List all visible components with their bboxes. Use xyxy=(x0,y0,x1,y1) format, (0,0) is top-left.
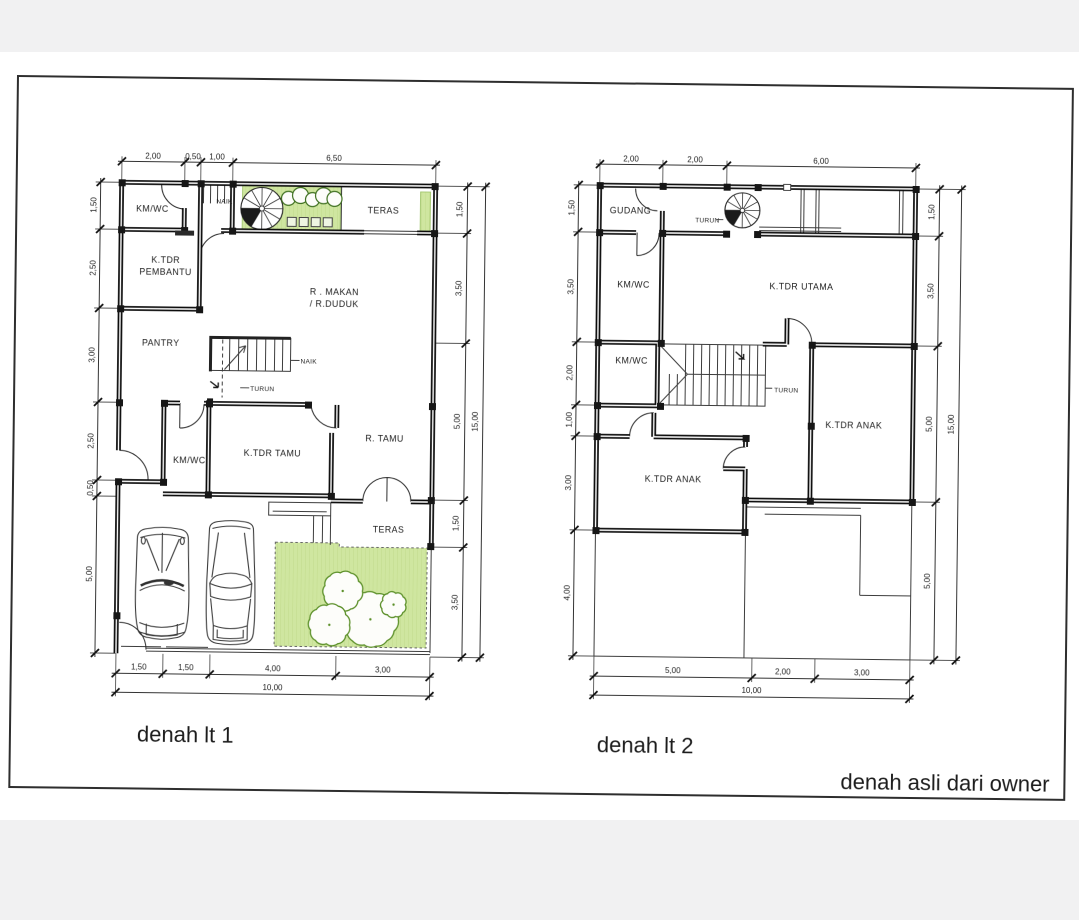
svg-text:1,50: 1,50 xyxy=(178,663,194,672)
svg-text:1,00: 1,00 xyxy=(209,152,225,161)
svg-text:0,50: 0,50 xyxy=(185,152,201,161)
svg-text:TURUN: TURUN xyxy=(695,217,719,224)
svg-text:3,50: 3,50 xyxy=(566,278,575,294)
svg-text:denah lt 2: denah lt 2 xyxy=(597,732,694,758)
svg-text:KM/WC: KM/WC xyxy=(617,279,650,289)
svg-text:6,00: 6,00 xyxy=(813,157,829,166)
svg-text:3,00: 3,00 xyxy=(87,347,96,363)
svg-text:1,50: 1,50 xyxy=(451,515,460,531)
svg-text:GUDANG: GUDANG xyxy=(610,205,651,216)
svg-text:PEMBANTU: PEMBANTU xyxy=(139,267,192,278)
svg-text:6,50: 6,50 xyxy=(326,154,342,163)
svg-text:1,50: 1,50 xyxy=(89,197,98,213)
svg-text:15,00: 15,00 xyxy=(947,414,956,435)
svg-text:3,00: 3,00 xyxy=(564,474,573,490)
svg-text:K.TDR: K.TDR xyxy=(151,255,180,265)
svg-text:5,00: 5,00 xyxy=(925,416,934,432)
svg-text:TERAS: TERAS xyxy=(373,524,405,534)
svg-text:10,00: 10,00 xyxy=(262,683,283,692)
svg-text:5,00: 5,00 xyxy=(453,413,462,429)
svg-text:K.TDR UTAMA: K.TDR UTAMA xyxy=(769,281,833,292)
svg-text:PANTRY: PANTRY xyxy=(142,338,180,348)
svg-text:1,00: 1,00 xyxy=(565,411,574,427)
svg-text:4,00: 4,00 xyxy=(265,664,281,673)
svg-text:3,50: 3,50 xyxy=(926,283,935,299)
svg-text:K.TDR TAMU: K.TDR TAMU xyxy=(244,448,302,459)
svg-text:3,50: 3,50 xyxy=(454,280,463,296)
svg-text:1,50: 1,50 xyxy=(927,204,936,220)
svg-text:2,00: 2,00 xyxy=(623,154,639,163)
svg-text:denah lt 1: denah lt 1 xyxy=(137,722,234,748)
svg-text:3,00: 3,00 xyxy=(854,668,870,677)
svg-text:5,00: 5,00 xyxy=(923,573,932,589)
svg-text:R. TAMU: R. TAMU xyxy=(365,433,404,443)
svg-text:3,00: 3,00 xyxy=(375,665,391,674)
svg-text:KM/WC: KM/WC xyxy=(615,355,648,365)
svg-text:TURUN: TURUN xyxy=(250,386,274,393)
svg-text:1,50: 1,50 xyxy=(455,201,464,217)
svg-text:2,50: 2,50 xyxy=(89,260,98,276)
svg-text:2,00: 2,00 xyxy=(145,152,161,161)
svg-text:TURUN: TURUN xyxy=(774,387,798,394)
svg-text:1,50: 1,50 xyxy=(567,199,576,215)
svg-text:NAIK: NAIK xyxy=(216,198,233,205)
svg-text:4,00: 4,00 xyxy=(563,584,572,600)
svg-text:denah asli dari owner: denah asli dari owner xyxy=(840,769,1049,797)
svg-text:R . MAKAN: R . MAKAN xyxy=(310,287,359,298)
svg-text:NAIK: NAIK xyxy=(300,358,317,365)
svg-text:K.TDR ANAK: K.TDR ANAK xyxy=(645,474,702,485)
svg-text:K.TDR ANAK: K.TDR ANAK xyxy=(825,420,882,431)
svg-text:5,00: 5,00 xyxy=(85,566,94,582)
svg-text:2,50: 2,50 xyxy=(86,433,95,449)
svg-text:2,00: 2,00 xyxy=(687,155,703,164)
svg-text:10,00: 10,00 xyxy=(741,686,762,695)
svg-text:0,50: 0,50 xyxy=(86,480,95,496)
svg-text:1,50: 1,50 xyxy=(131,662,147,671)
svg-text:2,00: 2,00 xyxy=(565,364,574,380)
svg-text:KM/WC: KM/WC xyxy=(173,455,206,465)
svg-text:5,00: 5,00 xyxy=(665,666,681,675)
svg-text:KM/WC: KM/WC xyxy=(136,203,169,213)
svg-text:3,50: 3,50 xyxy=(450,594,459,610)
svg-text:2,00: 2,00 xyxy=(775,667,791,676)
svg-text:TERAS: TERAS xyxy=(368,205,400,215)
svg-text:/ R.DUDUK: / R.DUDUK xyxy=(310,299,359,310)
svg-text:15,00: 15,00 xyxy=(471,411,480,432)
